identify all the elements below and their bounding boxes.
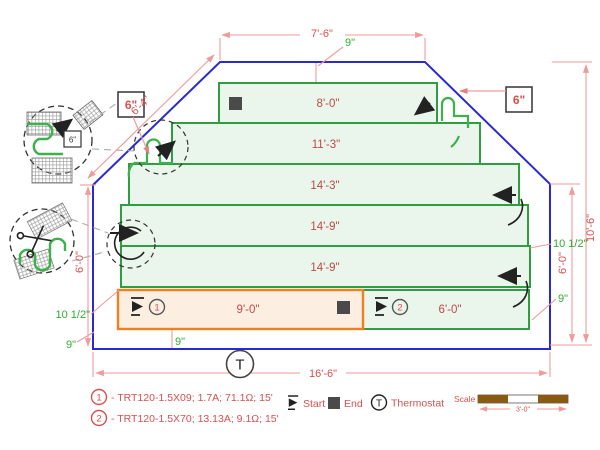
legend-thermostat-label: Thermostat xyxy=(391,398,444,410)
legend-thermostat-symbol: T xyxy=(376,399,382,410)
legend-start-icon xyxy=(288,396,298,409)
gap-10half-right: 10 1/2" xyxy=(553,238,588,250)
legend-circuit1-text: - TRT120-1.5X09; 1.7A; 71.1Ω; 15' xyxy=(111,392,273,404)
gap-9in-top: 9" xyxy=(345,37,355,49)
row-7-length: 6'-0" xyxy=(439,304,462,316)
scale-label: Scale xyxy=(454,394,476,404)
dim-right-inner: 6'-0" xyxy=(557,252,569,274)
gap-9in-right: 9" xyxy=(558,293,568,305)
dim-bottom: 16'-6" xyxy=(309,368,337,380)
legend-end-label: End xyxy=(344,398,363,410)
circuit-2-badge: 2 xyxy=(397,303,402,314)
six-inch-label-right: 6" xyxy=(513,93,525,107)
legend: 1 - TRT120-1.5X09; 1.7A; 71.1Ω; 15' 2 - … xyxy=(92,390,445,426)
detail-circle-mat: 6" xyxy=(24,101,103,183)
heating-layout-screenshot: 8'-0" 11'-3" 14'-3" 14'-9" 14'-9" 9'-0" … xyxy=(0,0,600,450)
six-inch-label-small: 6" xyxy=(69,136,76,145)
circuit-1-badge: 1 xyxy=(154,303,159,314)
gap-10half-left: 10 1/2" xyxy=(56,309,91,321)
dim-left: 6'-0" xyxy=(74,251,86,273)
mat-hatch-bottom xyxy=(32,158,72,183)
gap-9in-left: 9" xyxy=(66,339,76,351)
legend-start-label: Start xyxy=(303,398,325,410)
scale-bar-seg-left xyxy=(478,395,508,403)
row-2-length: 11'-3" xyxy=(312,139,340,151)
legend-circuit2-num: 2 xyxy=(96,414,101,425)
dim-top: 7'-6" xyxy=(311,28,333,40)
legend-circuit1-num: 1 xyxy=(96,393,101,404)
scale-bar: Scale 3'-0" xyxy=(454,394,568,414)
legend-end-icon xyxy=(328,397,340,409)
row-1-length: 8'-0" xyxy=(317,98,340,110)
six-inch-leader-left xyxy=(133,117,149,154)
heating-mat-layout-diagram: 8'-0" 11'-3" 14'-3" 14'-9" 14'-9" 9'-0" … xyxy=(0,0,600,450)
legend-circuit2-text: - TRT120-1.5X70; 13.13A; 9.1Ω; 15' xyxy=(111,413,279,425)
row-4-length: 14'-9" xyxy=(310,221,339,233)
scale-bar-seg-right xyxy=(538,395,568,403)
detail-circle-scissors xyxy=(10,203,74,279)
gap-9in-bottom: 9" xyxy=(175,336,185,348)
end-marker-row6 xyxy=(337,301,350,314)
row-6-length: 9'-0" xyxy=(237,304,260,316)
thermostat-symbol: T xyxy=(235,357,244,374)
scale-value: 3'-0" xyxy=(516,407,530,414)
row-5-length: 14'-9" xyxy=(310,262,339,274)
end-marker-row1 xyxy=(229,97,242,110)
row-3-length: 14'-3" xyxy=(310,180,339,192)
